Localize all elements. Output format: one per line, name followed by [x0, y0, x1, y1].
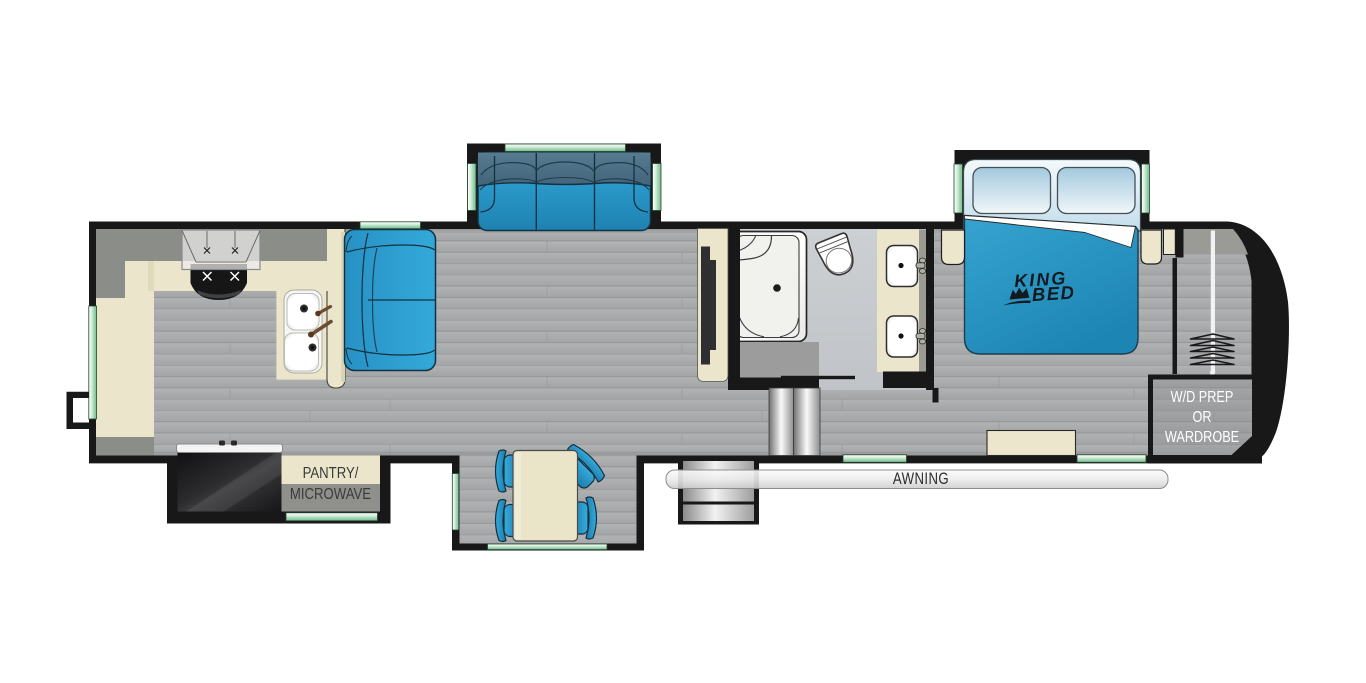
svg-text:WARDROBE: WARDROBE: [1165, 429, 1239, 446]
svg-text:OR: OR: [1192, 409, 1211, 426]
svg-text:MICROWAVE: MICROWAVE: [290, 486, 371, 503]
svg-text:PANTRY/: PANTRY/: [303, 465, 359, 482]
svg-text:W/D PREP: W/D PREP: [1171, 389, 1234, 406]
svg-text:AWNING: AWNING: [893, 470, 949, 489]
svg-text:BED: BED: [1031, 281, 1076, 305]
